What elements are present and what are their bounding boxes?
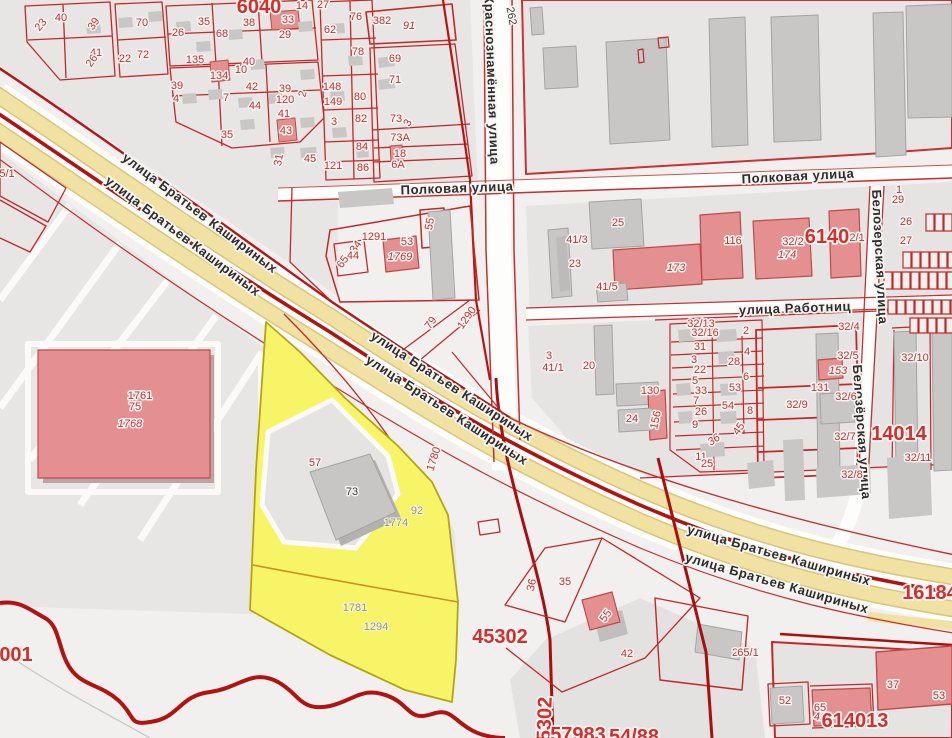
- parcel-number-label[interactable]: 35: [198, 16, 210, 28]
- parcel-number-label[interactable]: 42: [246, 81, 258, 93]
- building-tiny: [676, 383, 691, 396]
- parcel-number-label[interactable]: 10: [235, 64, 247, 76]
- quarter-number-label[interactable]: 6040: [237, 0, 282, 18]
- building-1761: [38, 350, 210, 478]
- garage-cell: [929, 272, 937, 289]
- house: [182, 93, 197, 104]
- parcel-number-label[interactable]: 130: [641, 385, 659, 397]
- parcel-number-label[interactable]: 76: [350, 11, 362, 23]
- parcel-number-label[interactable]: 65/1: [737, 647, 758, 659]
- cadastral-map-viewport[interactable]: улица Братьев Кашириныхулица Братьев Каш…: [0, 0, 952, 738]
- house: [228, 29, 243, 40]
- garage-cell: [935, 214, 943, 231]
- parcel-number-label[interactable]: 26: [172, 27, 184, 39]
- parcel-number-label[interactable]: 131: [811, 382, 829, 394]
- building-32-8: [747, 460, 775, 489]
- parcel-number-label[interactable]: 135: [186, 54, 204, 66]
- parcel-number-label[interactable]: 53: [729, 382, 741, 394]
- garage-cell: [906, 300, 914, 314]
- garage-cell: [948, 252, 952, 268]
- garage-cell: [902, 272, 910, 289]
- parcel-number-label[interactable]: 42: [621, 648, 633, 660]
- garage-cell: [942, 300, 950, 314]
- parcel-number-label[interactable]: 52: [779, 695, 791, 707]
- parcel-number-label[interactable]: 73А: [390, 132, 410, 144]
- house: [300, 117, 315, 128]
- parcel-number-label[interactable]: 116: [724, 235, 742, 247]
- parcel-number-label[interactable]: 53: [933, 690, 945, 702]
- parcel-number-label[interactable]: 27: [900, 235, 912, 247]
- parcel-number-label[interactable]: 26: [695, 406, 707, 418]
- red-shed-road: [478, 519, 500, 535]
- building-slab: [906, 4, 952, 118]
- parcel-number-label[interactable]: 9: [692, 419, 698, 431]
- parcel-number-label[interactable]: 149: [324, 96, 342, 108]
- parcel-number-label[interactable]: 120: [276, 94, 294, 106]
- house: [298, 21, 313, 32]
- parcel-number-label[interactable]: 32/5: [837, 350, 858, 362]
- building-slab: [771, 15, 821, 142]
- garage-cell: [911, 272, 919, 289]
- parcel-number-label[interactable]: 29: [279, 29, 291, 41]
- parcel-number-label[interactable]: 57: [309, 457, 321, 469]
- building-tiny: [678, 411, 693, 424]
- house: [240, 119, 255, 130]
- parcel-number-label[interactable]: 3: [546, 350, 552, 362]
- quarter-number-label[interactable]: 57983: [550, 724, 606, 738]
- land-number-label: 1294: [364, 621, 388, 633]
- building-small: [543, 46, 578, 89]
- garage-cell: [897, 300, 905, 314]
- parcel-number-label[interactable]: 3: [331, 116, 337, 128]
- parcel-number-label[interactable]: 69: [389, 53, 401, 65]
- land-number-label: 1781: [343, 602, 367, 614]
- cadastral-map[interactable]: улица Братьев Кашириныхулица Братьев Каш…: [0, 0, 952, 738]
- parcel-number-label[interactable]: 32/16: [691, 327, 719, 339]
- garage-cell: [937, 318, 945, 333]
- garage-cell: [938, 272, 946, 289]
- parcel-number-label[interactable]: 32/2: [782, 236, 803, 248]
- parcel-number-label[interactable]: 41/1: [542, 362, 563, 374]
- parcel-number-label[interactable]: 72: [137, 49, 149, 61]
- garage-cell: [920, 272, 928, 289]
- parcel-number-label[interactable]: 25: [701, 458, 713, 470]
- building-number-label: 174: [778, 249, 796, 261]
- quarter-number-label[interactable]: 54/88: [609, 726, 659, 738]
- parcel-number-label[interactable]: 1291: [362, 231, 386, 243]
- parcel-number-label[interactable]: 71: [389, 74, 401, 86]
- parcel-number-label[interactable]: 134: [210, 70, 228, 82]
- parcel-number-label[interactable]: 80: [354, 91, 366, 103]
- garage-cell: [933, 300, 941, 314]
- quarter-number-label[interactable]: 614013: [822, 710, 889, 732]
- garage-cell: [919, 318, 927, 333]
- garage-cell: [939, 252, 947, 268]
- parcel-number-label[interactable]: 45: [304, 153, 316, 165]
- parcel-number-label[interactable]: 5/1: [0, 168, 15, 180]
- parcel-number-label[interactable]: 54: [722, 400, 734, 412]
- building-tiny: [720, 411, 737, 424]
- parcel-number-label[interactable]: 38: [243, 17, 255, 29]
- parcel-number-label[interactable]: 55: [423, 217, 437, 231]
- quarter-number-label[interactable]: 6140: [805, 226, 850, 248]
- parcel-number-label[interactable]: 78: [352, 46, 364, 58]
- parcel-number-label[interactable]: 43: [280, 125, 292, 137]
- parcel-number-label[interactable]: 2: [743, 325, 749, 337]
- building-number-label: 173: [667, 262, 686, 274]
- parcel-number-label[interactable]: 39: [171, 80, 183, 92]
- garage-cell: [893, 272, 901, 289]
- garage-cell: [947, 272, 952, 289]
- parcel-number-label[interactable]: 70: [136, 17, 148, 29]
- parcel-number-label[interactable]: 68: [216, 28, 228, 40]
- parcel-number-label[interactable]: 41/5: [596, 281, 617, 293]
- building-32-8: [783, 439, 805, 501]
- garage-cell: [910, 318, 918, 333]
- parcel-number-label[interactable]: 6: [743, 371, 749, 383]
- parcel-number-label[interactable]: 31: [694, 341, 706, 353]
- parcel-number-label[interactable]: 7: [223, 92, 229, 104]
- parcel-number-label[interactable]: 62: [324, 24, 336, 36]
- house: [118, 17, 133, 28]
- garage-cell: [928, 318, 936, 333]
- building-number-label: 153: [829, 365, 848, 377]
- garage-cell: [944, 214, 952, 231]
- house: [332, 127, 347, 138]
- quarter-number-label[interactable]: 45302: [472, 626, 528, 648]
- parcel-number-label[interactable]: 26: [900, 216, 912, 228]
- parcel-number-label[interactable]: 37: [887, 679, 899, 691]
- quarter-number-label[interactable]: 14014: [871, 423, 927, 445]
- parcel-number-label[interactable]: 82: [355, 113, 367, 125]
- garage-cell: [903, 252, 911, 268]
- building-small: [530, 7, 544, 35]
- building-slab-a: [594, 325, 614, 395]
- building-slab-east: [932, 331, 952, 471]
- building-number-label: 1769: [388, 251, 412, 263]
- garage-cell: [915, 300, 923, 314]
- building-number-label: 1768: [118, 418, 143, 430]
- land-number-label: 1774: [384, 517, 408, 529]
- parcel-number-label[interactable]: 32/7: [834, 431, 855, 443]
- parcel-number-label[interactable]: 32/10: [901, 352, 929, 364]
- house: [148, 11, 163, 22]
- parcel-number-label[interactable]: 33: [282, 14, 294, 26]
- parcel-number-label[interactable]: 23: [569, 258, 581, 270]
- address-label: 73: [346, 486, 358, 498]
- parcel-number-label[interactable]: 25: [612, 217, 624, 229]
- parcel-number-label[interactable]: 121: [324, 160, 342, 172]
- parcel-number-label[interactable]: 32/11: [905, 452, 932, 464]
- garage-cell: [930, 252, 938, 268]
- parcel-number-label[interactable]: 86: [357, 162, 369, 174]
- parcel-number-label[interactable]: 20: [583, 360, 595, 372]
- house: [208, 89, 223, 100]
- parcel-number-label[interactable]: 36: [525, 578, 539, 592]
- parcel-number-label[interactable]: 44: [249, 100, 261, 112]
- parcel-number-label[interactable]: 84: [356, 141, 368, 153]
- parcel-number-label[interactable]: 53: [401, 236, 413, 248]
- parcel-number-label[interactable]: 27: [317, 0, 329, 11]
- parcel-number-label[interactable]: 41: [278, 108, 290, 120]
- building-tiny: [716, 329, 737, 342]
- building-slab: [873, 12, 906, 157]
- parcel-number-label[interactable]: 32/6: [835, 391, 856, 403]
- garage-cell: [912, 252, 920, 268]
- parcel-number-label[interactable]: 6А: [391, 159, 405, 171]
- parcel-number-label[interactable]: 32/8: [841, 469, 862, 481]
- garage-cell: [921, 252, 929, 268]
- parcel-number-label[interactable]: 4: [173, 93, 179, 105]
- house: [196, 41, 211, 52]
- parcel-number-label[interactable]: 29: [892, 194, 904, 206]
- parcel-number-label[interactable]: 32/9: [786, 399, 807, 411]
- parcel-number-label[interactable]: 8: [747, 405, 753, 417]
- garage-cell: [926, 214, 934, 231]
- quarter-number-label[interactable]: 16184: [902, 582, 952, 604]
- garage-cell: [946, 318, 952, 333]
- house: [300, 69, 315, 80]
- parcel-number-label[interactable]: 14: [296, 0, 308, 12]
- parcel-number-label[interactable]: 148: [323, 81, 341, 93]
- parcel-number-label[interactable]: 75: [129, 401, 141, 413]
- parcel-number-label[interactable]: 40: [55, 12, 67, 24]
- parcel-number-label[interactable]: 24: [626, 413, 638, 425]
- parcel-number-label[interactable]: 382: [373, 15, 391, 27]
- parcel-number-label[interactable]: 32/4: [838, 321, 859, 333]
- parcel-number-label[interactable]: 31: [272, 153, 286, 167]
- garage-cell: [924, 300, 932, 314]
- building-slab: [709, 17, 748, 147]
- land-number-label: 92: [411, 505, 423, 517]
- building-number-label: 91: [403, 20, 415, 32]
- parcel-number-label[interactable]: 41/3: [566, 234, 587, 246]
- parcel-number-label[interactable]: 35: [221, 129, 233, 141]
- parcel-number-label[interactable]: 35: [559, 576, 571, 588]
- parcel-number-label[interactable]: 22: [119, 53, 131, 65]
- parcel-number-label[interactable]: 28: [728, 356, 740, 368]
- parcel-number-label[interactable]: 4: [744, 346, 750, 358]
- quarter-number-label[interactable]: 001: [0, 644, 33, 666]
